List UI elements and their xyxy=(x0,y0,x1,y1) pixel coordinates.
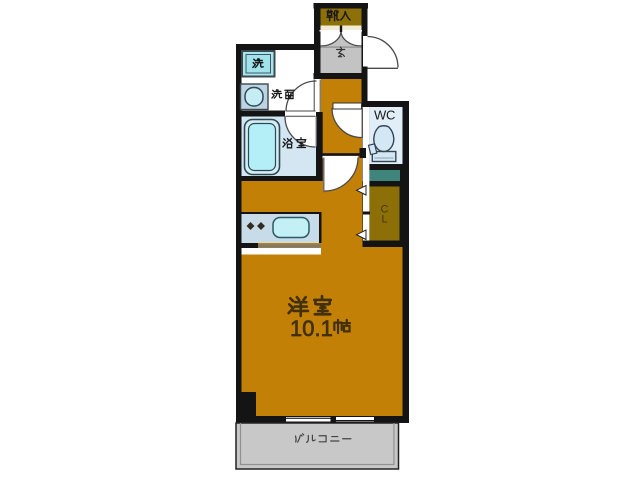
svg-text:10.1: 10.1 xyxy=(290,316,333,341)
svg-text:WC: WC xyxy=(374,108,395,123)
svg-text:L: L xyxy=(381,214,387,226)
